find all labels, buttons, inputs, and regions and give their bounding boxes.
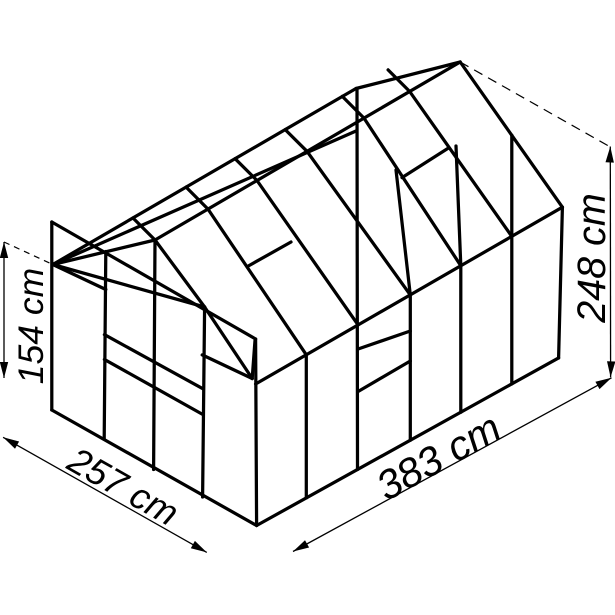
svg-text:248 cm: 248 cm (570, 193, 614, 324)
svg-text:154 cm: 154 cm (11, 268, 51, 384)
